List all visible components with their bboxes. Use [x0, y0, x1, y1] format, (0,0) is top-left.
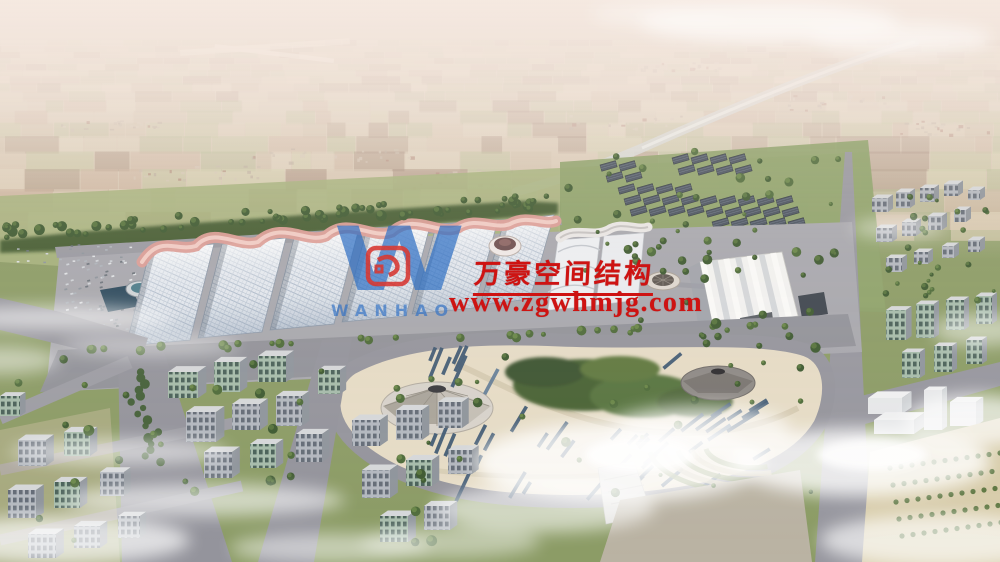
logo-subtext: WANHAO: [331, 301, 455, 320]
website-watermark: www.zgwhmjg.com: [449, 287, 703, 319]
logo-letter: W: [333, 216, 465, 311]
aerial-rendering: W WANHAO 万豪空间结构 www.zgwhmjg.com: [0, 0, 1000, 562]
